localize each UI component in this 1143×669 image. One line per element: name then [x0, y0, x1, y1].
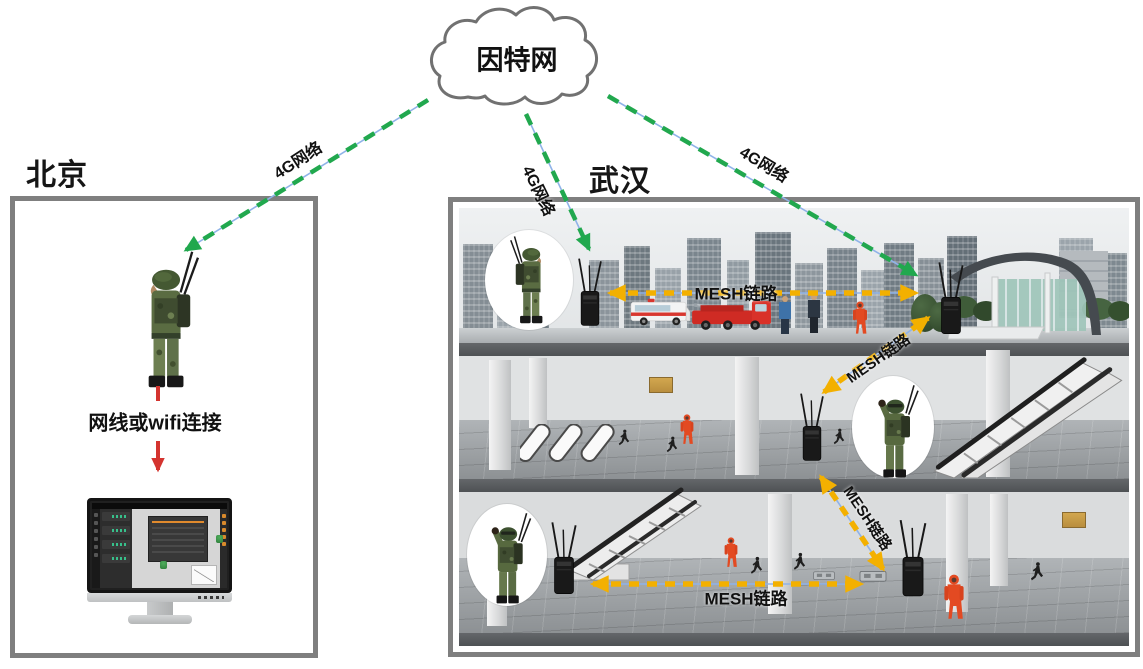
g4-label-beijing: 4G网络 [268, 134, 326, 183]
device-list-panel [100, 509, 132, 588]
running-person [833, 428, 845, 446]
running-person [1030, 560, 1044, 584]
app-toolbar-icons [220, 509, 227, 588]
escalator-up [565, 478, 715, 580]
command-monitor [87, 498, 232, 625]
equipment-case [813, 569, 835, 581]
monitor-chin [87, 593, 232, 602]
escalator-down [520, 424, 625, 466]
column [990, 494, 1008, 586]
subway-entrance [948, 243, 1129, 340]
internet-cloud-label: 因特网 [477, 39, 558, 78]
map-marker-icon [216, 535, 223, 543]
monitor-base [128, 615, 192, 624]
running-person [618, 429, 630, 447]
monitor-stand [147, 602, 173, 616]
running-person [666, 436, 678, 454]
map-marker-icon [160, 561, 167, 569]
column [489, 360, 511, 470]
network-topology-diagram: 北京 武汉 [0, 0, 1143, 669]
police-officer [777, 296, 793, 334]
mini-chart-panel [191, 565, 217, 585]
wuhan-region-label: 武汉 [589, 156, 651, 200]
concourse-floor [459, 356, 1129, 492]
soldier-concourse [864, 380, 924, 480]
equipment-case [858, 569, 888, 582]
hazmat-worker [942, 571, 966, 625]
mesh-radio-ground-right [935, 258, 967, 338]
mesh-label-ground: MESH链路 [694, 280, 777, 305]
escalator-up-pair [933, 345, 1123, 478]
column [529, 358, 547, 428]
soldier-ground [501, 234, 559, 327]
map-area [132, 509, 220, 588]
hazmat-worker [723, 536, 739, 570]
wired-wifi-label: 网线或wifi连接 [88, 407, 221, 436]
civilian-suit [806, 294, 822, 333]
wall-poster [1062, 512, 1086, 528]
wall-poster [649, 377, 673, 393]
mesh-label-platform: MESH链路 [704, 585, 787, 610]
hazmat-worker [679, 411, 695, 449]
g4-label-wuhan-right: 4G网络 [736, 139, 794, 187]
concourse-slab [459, 479, 1129, 492]
running-person [750, 556, 763, 576]
mesh-radio-platform-left [548, 508, 580, 608]
monitoring-app-screen [87, 498, 232, 593]
mesh-radio-concourse [797, 388, 827, 466]
ambulance [628, 295, 692, 329]
running-person [793, 552, 806, 572]
beijing-region-label: 北京 [26, 150, 88, 194]
wuhan-region-box [448, 197, 1140, 657]
subway-scene [459, 208, 1129, 646]
column [735, 357, 759, 475]
soldier-operator-beijing [133, 248, 203, 393]
platform-slab [459, 633, 1129, 646]
ground-floor [459, 208, 1129, 356]
app-sidebar-icons [92, 509, 100, 588]
mesh-radio-ground-left [575, 252, 605, 332]
device-dialog [148, 516, 208, 562]
platform-floor [459, 492, 1129, 646]
hazmat-worker [851, 301, 869, 336]
mesh-radio-platform-right [896, 512, 930, 604]
soldier-platform [478, 508, 536, 606]
